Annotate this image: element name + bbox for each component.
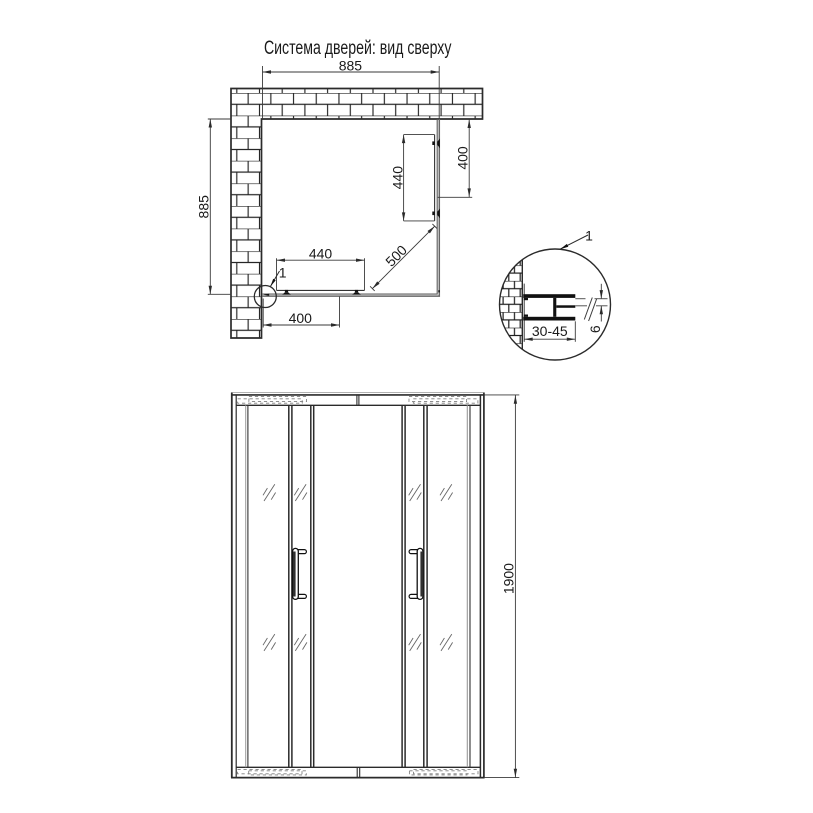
svg-text:500: 500 [382,242,410,270]
svg-text:885: 885 [339,57,363,73]
svg-text:Система дверей: вид сверху: Система дверей: вид сверху [264,38,452,59]
svg-text:30-45: 30-45 [532,323,568,339]
svg-text:440: 440 [309,245,333,261]
svg-text:400: 400 [454,146,470,170]
svg-text:440: 440 [389,166,405,190]
svg-text:1: 1 [279,265,287,281]
svg-text:1: 1 [585,228,593,244]
svg-text:400: 400 [289,310,313,326]
svg-text:6: 6 [587,325,603,333]
svg-text:1900: 1900 [501,563,517,594]
svg-text:885: 885 [195,195,211,219]
